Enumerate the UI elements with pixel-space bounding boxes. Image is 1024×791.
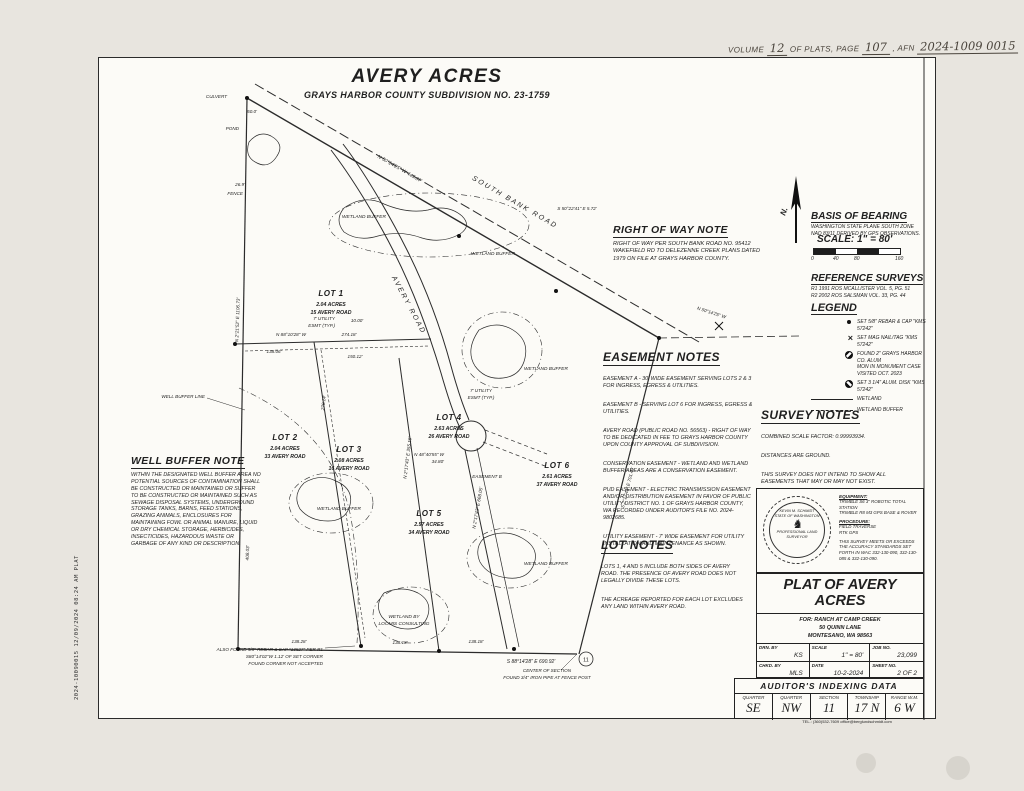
well-buffer-note-block: WELL BUFFER NOTE WITHIN THE DESIGNATED W… <box>131 451 261 548</box>
cell-label: CHKD. BY <box>759 663 781 668</box>
scale-bar-segment <box>857 249 879 254</box>
dim: 274.18' <box>341 332 357 337</box>
wetland-buffer-label: WETLAND BUFFER <box>524 561 569 567</box>
punch-hole <box>856 753 876 773</box>
wetland-outline <box>297 477 351 521</box>
south-bank-road-label: SOUTH BANK ROAD <box>471 175 559 230</box>
lot-name: LOT 1 <box>318 289 343 298</box>
cell-label: JOB NO. <box>872 645 891 650</box>
wetland-consultant-label: LOOMIS CONSULTING <box>378 621 429 627</box>
wetland-buffer-label: WETLAND BUFFER <box>342 214 387 220</box>
easement-paragraph: EASEMENT B - SERVING LOT 6 FOR INGRESS, … <box>603 402 753 416</box>
dim: 138.06' <box>267 349 282 354</box>
alum-disk-icon <box>811 380 857 388</box>
road-centerline-extension <box>659 336 799 338</box>
bearing: N 48°40'55" W <box>414 452 445 457</box>
scale-bar <box>813 248 901 255</box>
wetland-buffer-label: WETLAND BUFFER <box>524 366 569 372</box>
pond-label: POND <box>226 126 240 131</box>
cell-label: SHEET NO. <box>872 663 896 668</box>
legend-item-label: WETLAND <box>857 396 881 403</box>
parcel-west-boundary <box>238 98 247 649</box>
dimension-labels: S 88°14'28" E 690.92' 138.28' 138.18' 13… <box>161 94 635 680</box>
auditors-indexing-table: AUDITOR'S INDEXING DATA QUARTER SE QUART… <box>734 678 924 719</box>
lot-name: LOT 3 <box>336 445 361 454</box>
lot-address: 34 AVERY ROAD <box>408 530 449 536</box>
avery-road-east-edge <box>343 144 469 420</box>
cell-value: MLS <box>789 670 802 677</box>
center-of-section-label: CENTER OF SECTION <box>523 668 572 673</box>
seal-title: PROFESSIONAL LAND SURVEYOR <box>770 530 824 539</box>
lot-name: LOT 6 <box>544 461 569 470</box>
scale-tick: 80 <box>854 256 860 262</box>
easement-paragraph: PUD EASEMENT - ELECTRIC TRANSMISSION EAS… <box>603 487 753 522</box>
lot-address: 33 AVERY ROAD <box>264 454 305 460</box>
mag-nail-x-mark <box>715 322 723 330</box>
cell-value: 23,099 <box>897 652 917 659</box>
section-column: SECTION 11 <box>811 694 849 720</box>
also-found-note: ALSO FOUND 5/8" REBAR & CAP "13527" PER … <box>216 647 324 652</box>
easement-b-label: EASEMENT B <box>472 474 502 479</box>
scale-cell: SCALE 1" = 80' <box>810 644 871 662</box>
lot1-south-line <box>235 339 431 344</box>
leader-line <box>325 646 355 648</box>
north-arrow: N. <box>778 176 801 243</box>
quarter-nw-column: QUARTER NW <box>773 694 811 720</box>
quarter-se-column: QUARTER SE <box>735 694 773 720</box>
right-of-way-body: RIGHT OF WAY PER SOUTH BANK ROAD NO. 954… <box>613 241 773 263</box>
surveyor-seal: KEVIN M. SCHMIDT STATE OF WASHINGTON ♞ P… <box>763 496 831 564</box>
legend-item-label: SET 3 1/4" ALUM. DISK "KMS 57242" <box>857 380 926 393</box>
legend-item: FOUND 2" GRAYS HARBOR CO. ALUM MON IN MO… <box>811 351 926 377</box>
easement-paragraph: AVERY ROAD (PUBLIC ROAD NO. 56563) - RIG… <box>603 428 753 449</box>
lot-name: LOT 4 <box>436 413 461 422</box>
fence-label: FENCE <box>227 191 244 196</box>
scale-tick: 0 <box>811 256 814 262</box>
easement-b-line <box>485 430 547 454</box>
cell-value: 1" = 80' <box>841 652 863 659</box>
wetland-areas <box>248 134 536 629</box>
also-found-note: FOUND CORNER NOT ACCEPTED <box>248 661 323 666</box>
section-number: 11 <box>583 658 589 664</box>
set-rebar-dot-icon <box>811 319 857 327</box>
title-block-grid: DRN. BY KS SCALE 1" = 80' JOB NO. 23,099… <box>757 643 923 680</box>
lot-line-dim: 270.14' <box>320 395 327 412</box>
road-bearing-label: N 50°14'25" W <box>696 306 727 320</box>
scale-bar-segment <box>836 249 858 254</box>
utility-easement-label: ESMT (TYP.) <box>308 323 335 328</box>
survey-notes-heading: SURVEY NOTES <box>761 408 860 424</box>
mag-nail-x-icon: × <box>811 335 857 343</box>
dim: 34.80' <box>432 459 444 464</box>
column-value: 17 N <box>848 700 885 716</box>
well-buffer-line-label: WELL BUFFER LINE <box>161 394 206 399</box>
cell-value: 10-2-2024 <box>834 670 864 677</box>
wetland-outline <box>478 533 536 578</box>
firm-telephone: TEL.: (360)532-7609 office@berglundschmi… <box>775 719 919 724</box>
easement-b-line <box>483 442 545 466</box>
surveyor-stamp-box: KEVIN M. SCHMIDT STATE OF WASHINGTON ♞ P… <box>756 488 924 573</box>
legend-item-label: SET MAG NAIL/TAG "KMS 57242" <box>857 335 926 348</box>
wetland-buffer-label: WETLAND BUFFER <box>471 251 516 257</box>
afn-label: , AFN <box>892 44 914 53</box>
volume-label: VOLUME <box>728 45 764 54</box>
volume-number-handwritten: 12 <box>767 41 788 56</box>
title-block-client: FOR: RANCH AT CAMP CREEK 50 QUINN LANE M… <box>757 614 923 643</box>
north-label: N. <box>778 206 789 217</box>
plat-document-page: { "recording_line": { "volume_label": "V… <box>0 0 1024 791</box>
pond-outline <box>248 134 280 165</box>
lot-acres: 2.04 ACRES <box>315 302 346 308</box>
column-value: SE <box>735 700 772 716</box>
basis-of-bearing-block: BASIS OF BEARING WASHINGTON STATE PLANE … <box>811 206 920 238</box>
lot-acres: 2.63 ACRES <box>433 426 464 432</box>
road-bearing-label: N 50°14'25" W 445.07' <box>376 154 423 185</box>
lot2-lot3-line <box>314 342 361 646</box>
title-block-title: PLAT OF AVERY ACRES <box>757 574 923 614</box>
procedure-list: FIELD TRAVERSE RTK GPS <box>839 524 921 535</box>
wetland-outline <box>339 200 467 240</box>
afn-number-handwritten: 2024-1009 0015 <box>917 39 1018 55</box>
lot-address: 37 AVERY ROAD <box>536 482 577 488</box>
also-found-note: S80°14'02"W 1.12' OF SET CORNER <box>246 654 324 659</box>
scale-heading: SCALE: 1" = 80' <box>817 234 892 245</box>
column-value: 6 W <box>886 700 923 716</box>
wetland-outline <box>471 325 526 378</box>
found-monument-icon <box>811 351 857 359</box>
cell-label: DATE <box>812 663 824 668</box>
job-no-cell: JOB NO. 23,099 <box>870 644 923 662</box>
dim: 10.00' <box>351 318 363 323</box>
equipment-notes: EQUIPMENT: TRIMBLE S6 3" ROBOTIC TOTAL S… <box>839 494 921 564</box>
legend-item: SET 3 1/4" ALUM. DISK "KMS 57242" <box>811 380 926 393</box>
center-of-section-label: FOUND 3/4" IRON PIPE AT FENCE POST <box>503 675 592 680</box>
scale-bar-segment <box>879 249 901 254</box>
legend-item-label: FOUND 2" GRAYS HARBOR CO. ALUM MON IN MO… <box>857 351 926 377</box>
legend-heading: LEGEND <box>811 302 857 315</box>
culvert-label: CULVERT <box>206 94 228 99</box>
lot-acres: 2.57 ACRES <box>413 522 444 528</box>
leader-line <box>207 398 245 410</box>
scale-bar-segment <box>814 249 836 254</box>
cell-label: DRN. BY <box>759 645 778 650</box>
lot-acres: 2.08 ACRES <box>333 458 364 464</box>
lot-line-bearing: N 2°17'43" E 668.05' <box>471 486 483 529</box>
avery-road-south-west-edge <box>465 450 507 649</box>
reference-surveys-block: REFERENCE SURVEYS R1 1991 ROS MCALLISTER… <box>811 268 923 300</box>
legend-item: SET 5/8" REBAR & CAP "KMS 57242" <box>811 319 926 332</box>
parcel-north-boundary-road-edge <box>247 98 659 338</box>
legend-item-label: SET 5/8" REBAR & CAP "KMS 57242" <box>857 319 926 332</box>
plat-sheet: AVERY ACRES GRAYS HARBOR COUNTY SUBDIVIS… <box>98 57 936 719</box>
right-of-way-heading: RIGHT OF WAY NOTE <box>613 224 728 238</box>
bearing-label: S 50°22'41" E 5.72' <box>557 206 597 211</box>
column-value: NW <box>773 700 810 716</box>
lot-address: 26 AVERY ROAD <box>427 434 469 440</box>
reference-surveys-heading: REFERENCE SURVEYS <box>811 273 923 285</box>
bearing: N 88°10'28" W <box>276 332 307 337</box>
lot-name: LOT 2 <box>272 433 297 442</box>
lot-line-bearing: N 2°17'43" E 355.16' <box>402 436 412 479</box>
survey-paragraph: COMBINED SCALE FACTOR: 0.99993934. <box>761 434 919 441</box>
cell-value: KS <box>794 652 803 659</box>
punch-hole <box>946 756 970 780</box>
legend-item: WETLAND <box>811 396 926 404</box>
lot-name: LOT 5 <box>416 509 441 518</box>
equipment-list: TRIMBLE S6 3" ROBOTIC TOTAL STATION TRIM… <box>839 499 921 516</box>
seal-figure-icon: ♞ <box>770 518 824 530</box>
utility-easement-line <box>321 350 365 638</box>
monument-points <box>233 96 661 653</box>
bottom-dim: 138.18' <box>469 639 484 644</box>
dim: 50.0' <box>247 109 257 114</box>
utility-easement-label: 7' UTILITY <box>470 388 493 393</box>
dim: 150.12' <box>348 354 363 359</box>
legend-item: × SET MAG NAIL/TAG "KMS 57242" <box>811 335 926 348</box>
column-value: 11 <box>811 700 848 716</box>
utility-easement-label: ESMT (TYP.) <box>468 395 495 400</box>
legend-block: LEGEND SET 5/8" REBAR & CAP "KMS 57242" … <box>811 298 926 418</box>
lot-acres: 2.61 ACRES <box>541 474 572 480</box>
well-buffer-heading: WELL BUFFER NOTE <box>131 455 245 469</box>
lot-acres: 2.04 ACRES <box>269 446 300 452</box>
bottom-bearing: S 88°14'28" E 690.92' <box>507 659 557 665</box>
easement-paragraph: EASEMENT A - 30' WIDE EASEMENT SERVING L… <box>603 376 753 390</box>
scale-tick: 40 <box>833 256 839 262</box>
cell-label: SCALE <box>812 645 827 650</box>
title-block: PLAT OF AVERY ACRES FOR: RANCH AT CAMP C… <box>756 573 924 678</box>
basis-heading: BASIS OF BEARING <box>811 211 907 223</box>
survey-paragraph: DISTANCES ARE GROUND. <box>761 453 919 460</box>
wetland-line-icon <box>811 396 857 404</box>
lot3-lot4-line <box>399 358 439 651</box>
lot-notes-paragraph: LOTS 1, 4 AND 5 INCLUDE BOTH SIDES OF AV… <box>601 564 746 585</box>
easement-paragraph: CONSERVATION EASEMENT - WETLAND AND WETL… <box>603 461 753 475</box>
bottom-dim: 138.28' <box>292 639 307 644</box>
wetland-consultant-label: WETLAND BY <box>388 614 420 620</box>
survey-paragraph: THIS SURVEY DOES NOT INTEND TO SHOW ALL … <box>761 472 919 486</box>
lot-notes-heading: LOT NOTES <box>601 538 673 554</box>
plats-label: OF PLATS, PAGE <box>790 44 860 54</box>
utility-easement-label: 7' UTILITY <box>313 316 336 321</box>
recording-volume-line: VOLUME 12 OF PLATS, PAGE 107 , AFN 2024-… <box>728 38 1023 55</box>
lot-address: 16 AVERY ROAD <box>328 466 369 472</box>
lot-notes-paragraph: THE ACREAGE REPORTED FOR EACH LOT EXCLUD… <box>601 597 746 611</box>
easement-notes-block: EASEMENT NOTES EASEMENT A - 30' WIDE EAS… <box>603 348 753 560</box>
wetland-buffer-label: WETLAND BUFFER <box>317 506 362 512</box>
scale-tick: 160 <box>895 256 903 262</box>
right-of-way-note-block: RIGHT OF WAY NOTE RIGHT OF WAY PER SOUTH… <box>613 220 773 263</box>
lot-notes-block: LOT NOTES LOTS 1, 4 AND 5 INCLUDE BOTH S… <box>601 536 746 623</box>
vertical-recording-stamp: 2024-10090015 12/09/2024 08:24 AM PLAT <box>74 540 80 700</box>
page-number-handwritten: 107 <box>862 40 890 55</box>
west-bearing: N 2°21'52" E 1106.73' <box>234 298 241 343</box>
drn-by-cell: DRN. BY KS <box>757 644 810 662</box>
township-column: TOWNSHIP 17 N <box>848 694 886 720</box>
auditors-heading: AUDITOR'S INDEXING DATA <box>735 679 923 694</box>
accuracy-statement: THIS SURVEY MEETS OR EXCEEDS THE ACCURAC… <box>839 539 921 562</box>
bottom-dim: 138.18' <box>393 640 408 645</box>
range-column: RANGE W.M. 6 W <box>886 694 923 720</box>
well-buffer-body: WITHIN THE DESIGNATED WELL BUFFER AREA N… <box>131 472 261 548</box>
cell-value: 2 OF 2 <box>897 670 917 677</box>
easement-notes-heading: EASEMENT NOTES <box>603 350 720 366</box>
dim: 26.9' <box>234 182 245 187</box>
